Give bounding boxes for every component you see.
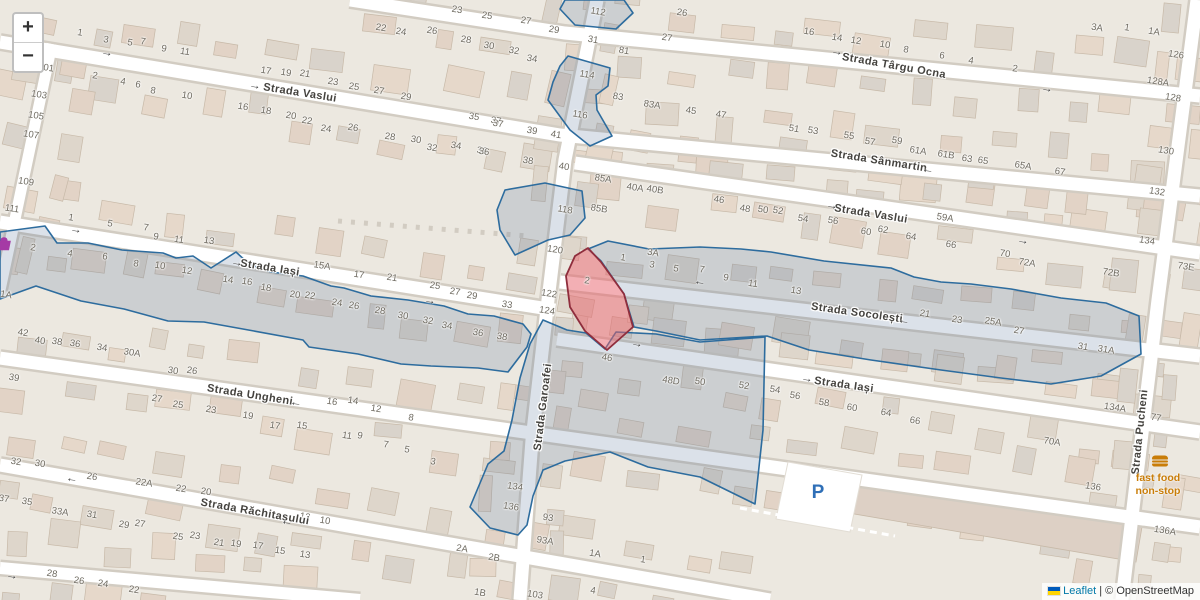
ukraine-flag-icon (1048, 587, 1060, 595)
map-canvas[interactable]: 1357911171921232527293537246810161820222… (0, 0, 1200, 600)
zoom-in-button[interactable]: + (14, 14, 42, 43)
map-tiles (0, 0, 1200, 600)
attribution-bar: Leaflet | © OpenStreetMap (1042, 583, 1200, 600)
zoom-out-button[interactable]: − (14, 43, 42, 71)
zoom-control: + − (12, 12, 44, 73)
osm-credit: © OpenStreetMap (1105, 585, 1194, 597)
leaflet-link[interactable]: Leaflet (1063, 585, 1096, 597)
parking-lot (776, 462, 862, 532)
attribution-separator: | (1099, 585, 1102, 597)
